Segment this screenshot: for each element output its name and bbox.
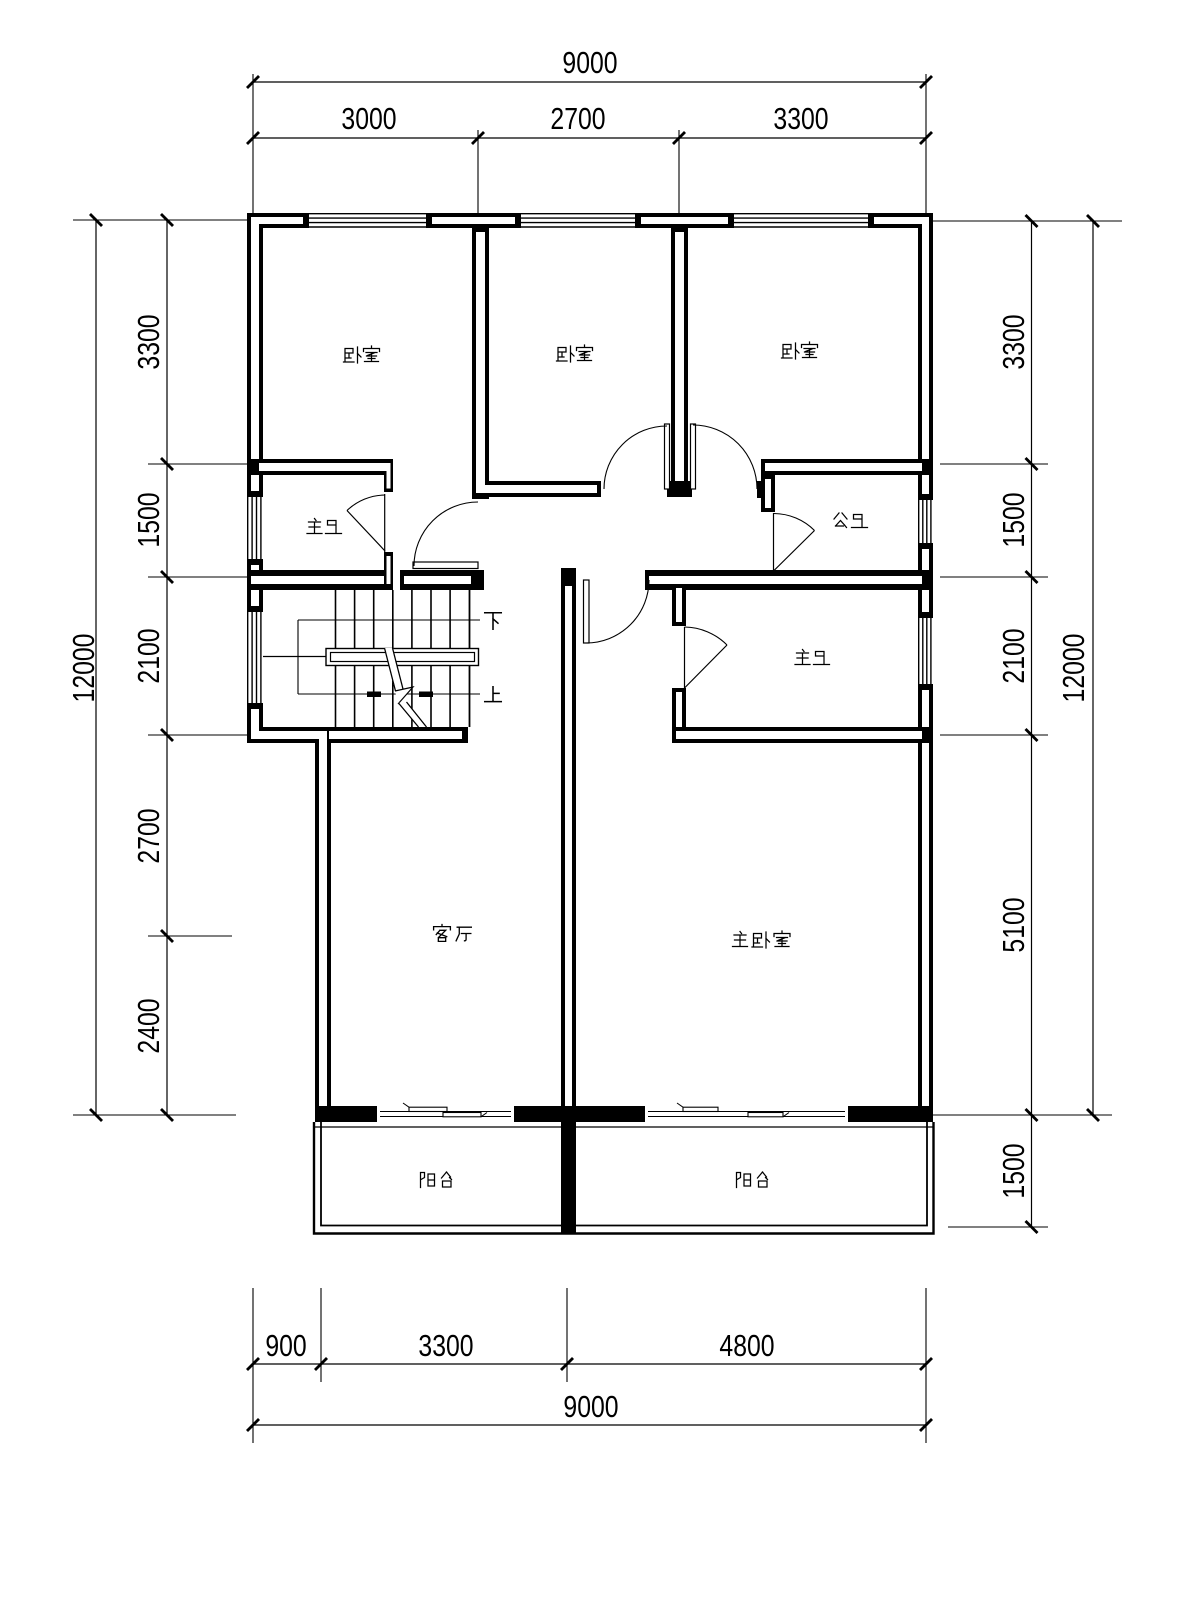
svg-text:1500: 1500	[132, 492, 166, 547]
svg-text:12000: 12000	[1057, 634, 1091, 703]
svg-text:2700: 2700	[550, 102, 605, 136]
svg-text:2400: 2400	[132, 998, 166, 1053]
svg-text:2700: 2700	[132, 808, 166, 863]
svg-text:9000: 9000	[563, 1390, 618, 1424]
svg-text:3300: 3300	[132, 314, 166, 369]
svg-text:4800: 4800	[719, 1329, 774, 1363]
svg-text:1500: 1500	[997, 1143, 1031, 1198]
svg-text:12000: 12000	[67, 634, 101, 703]
svg-text:5100: 5100	[997, 897, 1031, 952]
svg-text:2100: 2100	[997, 628, 1031, 683]
svg-text:3000: 3000	[341, 102, 396, 136]
svg-text:3300: 3300	[418, 1329, 473, 1363]
svg-text:3300: 3300	[773, 102, 828, 136]
svg-text:3300: 3300	[997, 314, 1031, 369]
svg-text:2100: 2100	[132, 628, 166, 683]
svg-text:1500: 1500	[997, 492, 1031, 547]
svg-text:900: 900	[265, 1329, 306, 1363]
svg-text:9000: 9000	[562, 46, 617, 80]
